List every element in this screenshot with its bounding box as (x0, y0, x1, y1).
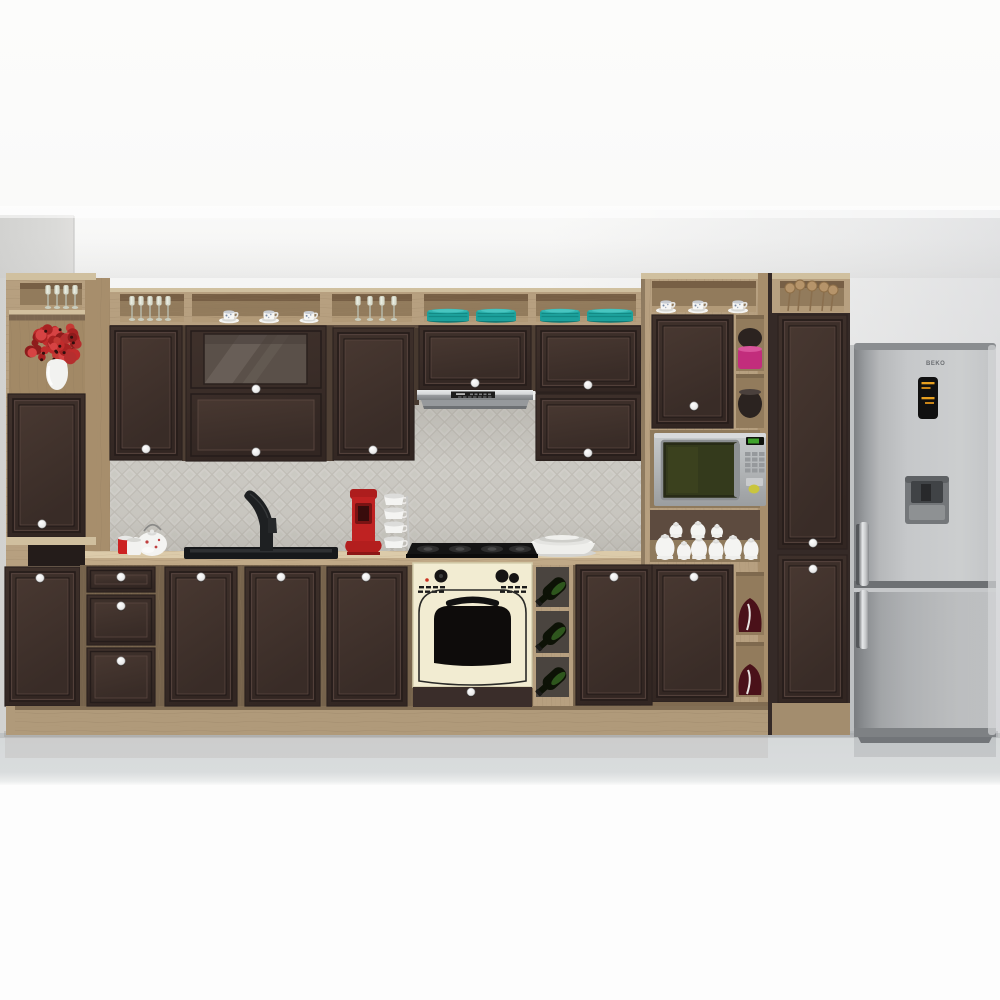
svg-text:BEKO: BEKO (926, 361, 945, 367)
